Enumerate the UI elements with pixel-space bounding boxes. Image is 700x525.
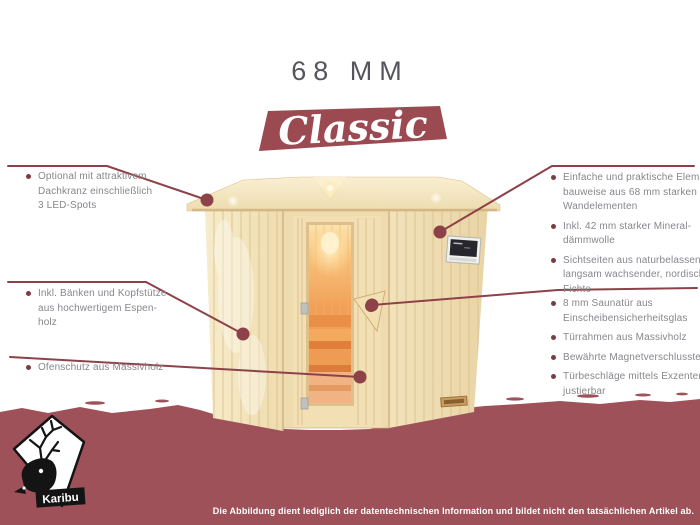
bullet-dot [551, 335, 556, 340]
led-spot-right [430, 192, 442, 204]
bullet-dot [551, 258, 556, 263]
callout-dot-baenke [237, 328, 250, 341]
sauna-illustration [187, 177, 500, 432]
callout-dot-saunatuer [366, 299, 379, 312]
callout-dot-dachkranz [201, 194, 214, 207]
sauna-left-wall [205, 211, 283, 432]
callout-dot-wandelemente [434, 226, 447, 239]
product-sheet: Classic Karibu 68 MM Optional mit attrak… [0, 0, 700, 525]
bullet-dot [551, 374, 556, 379]
callout-text: Optional mit attraktivem Dachkranz einsc… [38, 170, 152, 214]
callout-item: 8 mm Saunatür aus Einscheibensicherheits… [551, 297, 700, 326]
callout-text: Türbeschläge mittels Exzenter justierbar [563, 370, 700, 399]
bullet-dot [26, 174, 31, 179]
page-title: 68 MM [0, 56, 700, 87]
callout-item: Sichtseiten aus naturbelassener, langsam… [551, 254, 700, 298]
disclaimer-text: Die Abbildung dient lediglich der datent… [213, 506, 694, 516]
callout-text: 8 mm Saunatür aus Einscheibensicherheits… [563, 297, 688, 326]
bullet-dot [26, 291, 31, 296]
callout-item: Einfache und praktische Element- bauweis… [551, 171, 700, 215]
bullet-dot [551, 175, 556, 180]
callout-text: Inkl. 42 mm starker Mineral- dämmwolle [563, 220, 691, 249]
bullet-dot [551, 301, 556, 306]
callout-text: Einfache und praktische Element- bauweis… [563, 171, 700, 215]
callout-left-baenke: Inkl. Bänken und Kopfstütze aus hochwert… [26, 287, 167, 331]
led-spot-left [227, 195, 239, 207]
series-badge: Classic [259, 101, 447, 154]
sauna-door [283, 208, 389, 431]
callout-item: Inkl. 42 mm starker Mineral- dämmwolle [551, 220, 700, 249]
callout-left-dachkranz: Optional mit attraktivem Dachkranz einsc… [26, 170, 152, 214]
bullet-dot [26, 365, 31, 370]
callout-text: Sichtseiten aus naturbelassener, langsam… [563, 254, 700, 298]
callout-text: Ofenschutz aus Massivholz [38, 361, 163, 376]
air-vent [441, 396, 468, 407]
bench-lower [309, 355, 351, 365]
bench-top [309, 329, 351, 341]
callout-text: Inkl. Bänken und Kopfstütze aus hochwert… [38, 287, 167, 331]
callout-item: Bewährte Magnetverschlusstechnik [551, 351, 700, 366]
series-badge-text: Classic [277, 101, 429, 154]
callout-right-walls: Einfache und praktische Element- bauweis… [551, 171, 700, 297]
callout-right-door: 8 mm Saunatür aus Einscheibensicherheits… [551, 297, 700, 399]
bullet-dot [551, 355, 556, 360]
karibu-logo-text: Karibu [42, 492, 79, 507]
bullet-dot [551, 224, 556, 229]
callout-text: Türrahmen aus Massivholz [563, 331, 687, 346]
callout-text: Bewährte Magnetverschlusstechnik [563, 351, 700, 366]
bench-backrest [309, 315, 351, 327]
roof-crown [187, 177, 500, 211]
callout-left-ofenschutz: Ofenschutz aus Massivholz [26, 361, 163, 376]
callout-dot-ofenschutz [354, 371, 367, 384]
callout-item: Türrahmen aus Massivholz [551, 331, 700, 346]
control-panel [446, 236, 481, 264]
callout-item: Türbeschläge mittels Exzenter justierbar [551, 370, 700, 399]
